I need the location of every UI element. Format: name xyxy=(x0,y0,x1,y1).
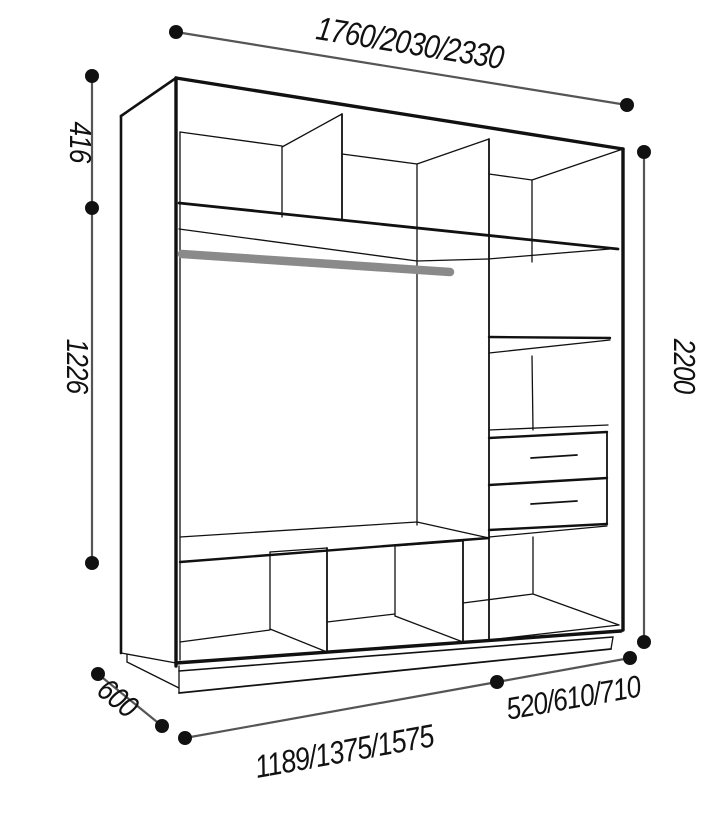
dot-2200-bottom xyxy=(637,635,651,649)
back-top-edge-c xyxy=(489,174,532,180)
label-total-height: 2200 xyxy=(666,338,701,394)
drawer-mid-edge xyxy=(489,478,607,485)
dimension-labels: 1760/2030/2330 416 1226 2200 600 1189/13… xyxy=(59,10,701,785)
drawer1-handle xyxy=(531,455,577,458)
label-middle-section-height: 1226 xyxy=(59,339,94,394)
dot-600-bottom xyxy=(155,719,169,733)
label-top-width: 1760/2030/2330 xyxy=(314,10,507,77)
wardrobe-outline xyxy=(121,78,623,666)
bottom-shelf-front xyxy=(180,538,489,562)
plinth-right-edge xyxy=(611,637,613,649)
dim-line-bottom-left-width xyxy=(185,682,497,738)
hanging-rail xyxy=(182,254,450,272)
bottom-section xyxy=(180,522,489,652)
drawer2-handle xyxy=(531,501,577,504)
edge-top-front xyxy=(176,78,623,149)
top-right-depth-edge xyxy=(532,149,623,180)
dimension-dots xyxy=(85,25,651,745)
right-shelf2-front xyxy=(489,337,610,338)
drawer-top-surface xyxy=(489,425,608,430)
right-column xyxy=(463,337,619,640)
partition-top xyxy=(417,139,489,164)
dot-bottom-width-right xyxy=(623,651,637,665)
right-shelf2-underside xyxy=(489,340,610,353)
dot-bottom-width-left xyxy=(178,731,192,745)
wardrobe-dimension-diagram: 1760/2030/2330 416 1226 2200 600 1189/13… xyxy=(0,0,707,813)
right-floor-right xyxy=(533,594,619,625)
back-top-edge-b xyxy=(342,154,417,164)
top-shelf xyxy=(179,203,618,261)
edge-bottom-front xyxy=(176,631,621,663)
dot-bottom-width-mid xyxy=(490,675,504,689)
edge-left-top-depth xyxy=(121,78,176,116)
dot-416-1226-mid xyxy=(85,201,99,215)
plinth-left-side-bottom xyxy=(127,662,179,688)
bottom-divider2-bottom xyxy=(395,616,463,642)
label-top-section-height: 416 xyxy=(62,122,97,164)
diagram-canvas: 1760/2030/2330 416 1226 2200 600 1189/13… xyxy=(0,0,707,813)
back-top-edge-a xyxy=(180,132,282,146)
dot-top-width-right xyxy=(620,98,634,112)
top-shelf-front-edge xyxy=(179,203,618,249)
dot-2200-top xyxy=(637,145,651,159)
top-dividers xyxy=(282,114,489,640)
dot-416-top xyxy=(85,69,99,83)
floor-back-edge-b xyxy=(327,614,395,622)
plinth-top-edge xyxy=(179,637,613,671)
bottom-shelf-diag xyxy=(417,522,489,538)
dot-top-width-left xyxy=(169,25,183,39)
right-floor-back xyxy=(463,594,533,603)
top-divider1-top xyxy=(282,114,342,147)
top-shelf-underside-right xyxy=(488,249,610,259)
floor-back-edge-a xyxy=(180,630,270,642)
drawer-top-edge xyxy=(489,432,607,438)
plinth xyxy=(127,637,613,693)
label-bottom-width-left: 1189/1375/1575 xyxy=(252,718,437,785)
bottom-divider1-bottom xyxy=(270,629,327,652)
top-shelf-underside-mid xyxy=(417,259,488,261)
back-right-corner-b xyxy=(532,356,533,430)
bottom-shelf-back xyxy=(180,522,417,537)
dot-600-top xyxy=(91,667,105,681)
dot-1226-bottom xyxy=(85,556,99,570)
edge-left-bottom-depth xyxy=(121,653,176,663)
